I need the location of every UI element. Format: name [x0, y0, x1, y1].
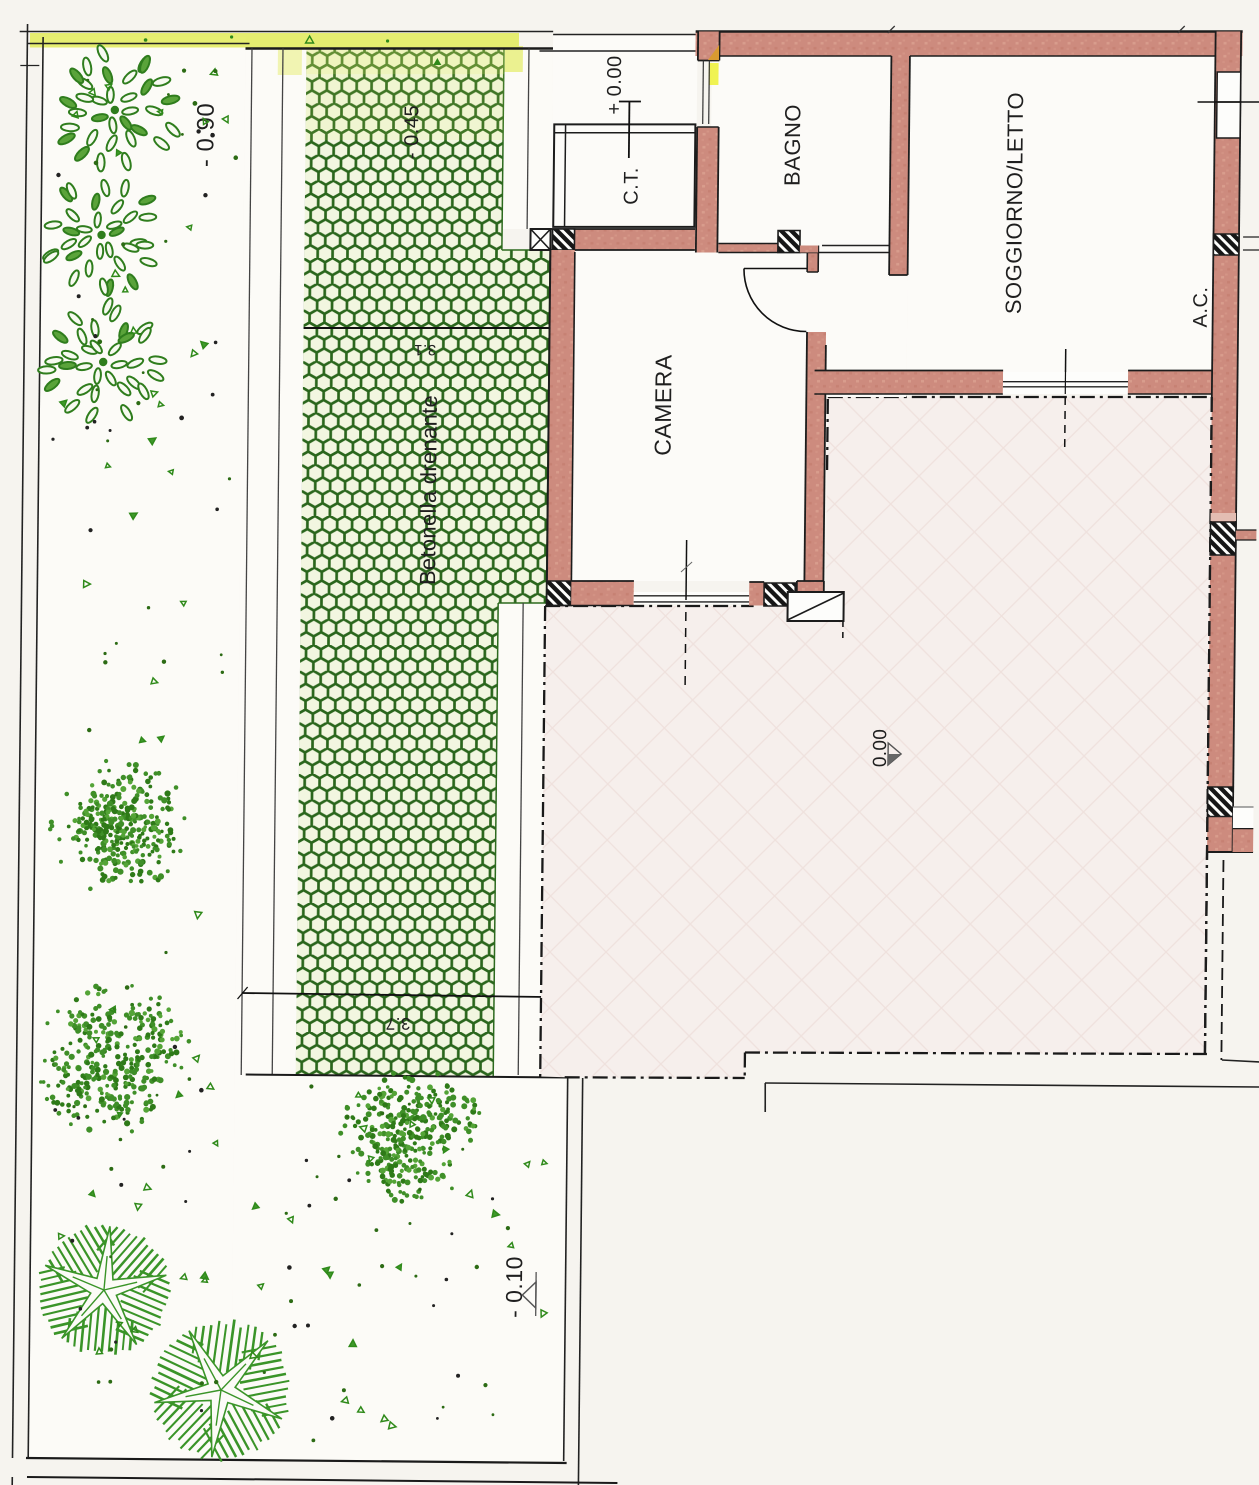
- svg-text:BAGNO: BAGNO: [780, 104, 806, 186]
- svg-text:SOGGIORNO/LETTO: SOGGIORNO/LETTO: [1001, 92, 1028, 314]
- svg-text:- 0.10: - 0.10: [501, 1256, 528, 1318]
- svg-text:Betonella drenante: Betonella drenante: [415, 395, 442, 585]
- svg-text:CAMERA: CAMERA: [650, 354, 677, 456]
- svg-text:3.1: 3.1: [414, 341, 437, 358]
- svg-text:+ 0.00: + 0.00: [603, 55, 626, 114]
- svg-text:A.C.: A.C.: [1190, 287, 1212, 328]
- svg-text:- 0.90: - 0.90: [192, 103, 220, 167]
- svg-text:C.T.: C.T.: [620, 167, 642, 205]
- svg-text:3.7: 3.7: [385, 1014, 410, 1033]
- svg-text:- 0.45: - 0.45: [401, 105, 424, 159]
